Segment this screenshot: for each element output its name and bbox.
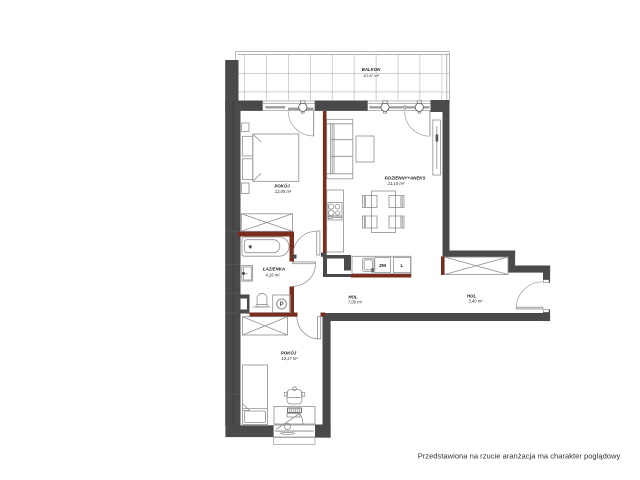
- svg-text:12,05 m²: 12,05 m²: [275, 189, 292, 194]
- svg-text:P: P: [280, 302, 284, 308]
- svg-text:3,40 m²: 3,40 m²: [468, 298, 483, 303]
- svg-text:4,16 m²: 4,16 m²: [265, 272, 280, 277]
- svg-text:BALKON: BALKON: [362, 67, 381, 72]
- svg-text:10,17 m²: 10,17 m²: [281, 356, 298, 361]
- svg-text:ŁAZIENKA: ŁAZIENKA: [262, 266, 285, 271]
- svg-text:ZM: ZM: [379, 263, 386, 269]
- svg-text:POKÓJ: POKÓJ: [281, 350, 297, 355]
- svg-text:POKÓJ: POKÓJ: [274, 183, 290, 188]
- svg-text:Przedstawiona na rzucie aranża: Przedstawiona na rzucie aranżacja ma cha…: [418, 452, 621, 461]
- svg-text:7,00 m²: 7,00 m²: [348, 299, 363, 304]
- svg-text:P.DZIENNY+ANEKS: P.DZIENNY+ANEKS: [385, 175, 426, 180]
- svg-text:21,15 m²: 21,15 m²: [387, 181, 405, 186]
- svg-text:L: L: [401, 263, 404, 269]
- svg-text:10,47 m²: 10,47 m²: [363, 73, 379, 78]
